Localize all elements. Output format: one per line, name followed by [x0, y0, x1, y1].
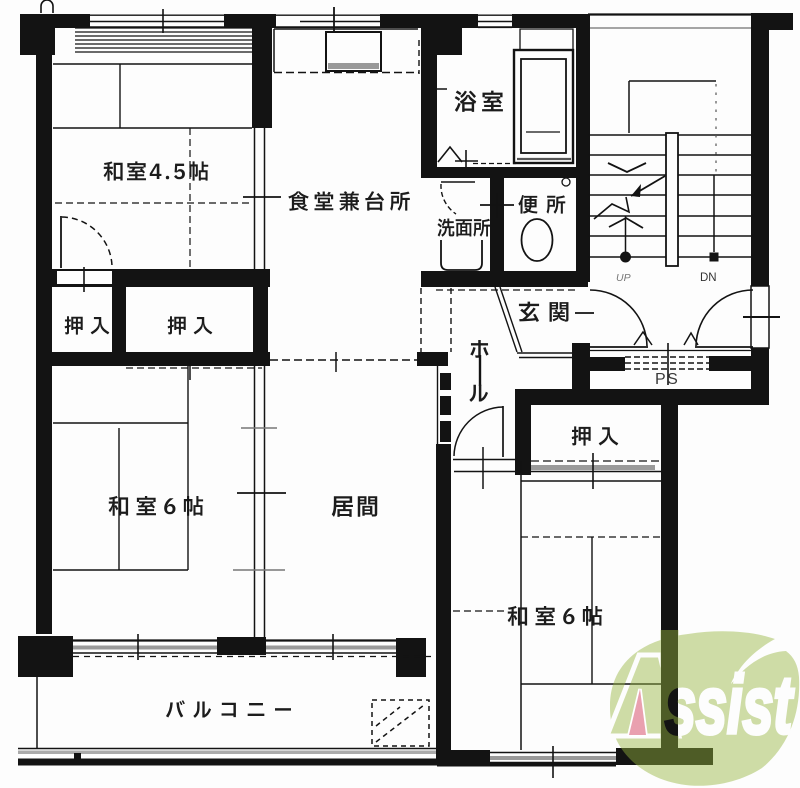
svg-text:UP: UP — [616, 272, 631, 284]
svg-text:PS: PS — [655, 371, 679, 388]
svg-text:DN: DN — [700, 272, 717, 284]
